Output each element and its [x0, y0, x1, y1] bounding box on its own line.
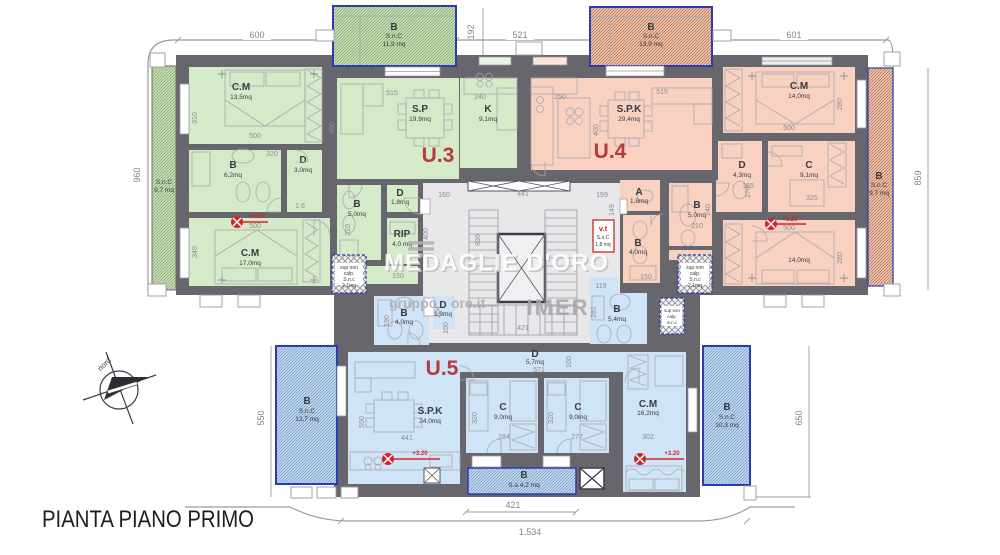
svg-text:284: 284 [498, 434, 510, 441]
svg-text:B: B [229, 160, 236, 171]
svg-text:S.a 4,2 mq: S.a 4,2 mq [508, 482, 540, 489]
svg-text:U.3: U.3 [422, 144, 455, 167]
svg-text:859: 859 [913, 170, 923, 185]
svg-text:1,8mq: 1,8mq [391, 199, 409, 206]
svg-text:421: 421 [505, 500, 520, 510]
svg-text:+3.20: +3.20 [248, 214, 264, 220]
svg-text:C: C [499, 402, 506, 413]
svg-text:521: 521 [512, 30, 527, 40]
svg-text:gruppo: gruppo [389, 295, 437, 311]
svg-text:302: 302 [642, 434, 654, 441]
svg-text:calp.: calp. [667, 314, 677, 319]
svg-text:960: 960 [132, 167, 142, 182]
svg-text:14,0mq: 14,0mq [788, 257, 810, 264]
svg-text:+3.20: +3.20 [782, 217, 798, 223]
svg-text:600: 600 [249, 30, 264, 40]
svg-text:281: 281 [591, 306, 598, 318]
svg-text:C.M: C.M [241, 248, 259, 259]
svg-text:29,4mq: 29,4mq [618, 116, 640, 123]
svg-text:B: B [647, 22, 654, 33]
svg-text:421: 421 [517, 325, 529, 332]
svg-text:240: 240 [474, 94, 486, 101]
svg-text:550: 550 [256, 410, 266, 425]
svg-text:B: B [723, 402, 730, 413]
svg-text:13,5mq: 13,5mq [230, 94, 252, 101]
svg-text:500: 500 [783, 125, 795, 132]
svg-text:325: 325 [806, 195, 818, 202]
svg-text:S.n.C: S.n.C [597, 235, 610, 241]
svg-text:1,8 mq: 1,8 mq [595, 242, 611, 248]
svg-text:550: 550 [359, 416, 366, 428]
svg-text:+3.20: +3.20 [412, 451, 428, 457]
svg-text:+3.20: +3.20 [664, 451, 680, 457]
svg-text:210: 210 [691, 223, 703, 230]
svg-text:6,2mq: 6,2mq [224, 172, 242, 179]
svg-text:400: 400 [329, 122, 336, 134]
svg-text:D: D [738, 160, 745, 171]
svg-text:19,9mq: 19,9mq [409, 116, 431, 123]
svg-text:310: 310 [192, 112, 199, 124]
svg-text:C: C [805, 160, 812, 171]
svg-text:17,0mq: 17,0mq [239, 260, 261, 267]
svg-text:5,0mq: 5,0mq [348, 211, 366, 218]
svg-text:B: B [613, 304, 620, 315]
svg-text:13,7 mq: 13,7 mq [295, 416, 319, 423]
svg-text:441: 441 [517, 191, 529, 198]
svg-text:11,9 mq: 11,9 mq [382, 41, 405, 48]
svg-text:280: 280 [837, 98, 844, 110]
svg-text:S.n.C: S.n.C [299, 408, 316, 415]
svg-text:S.n.C: S.n.C [386, 33, 403, 40]
svg-text:A: A [635, 187, 642, 198]
svg-text:340: 340 [192, 246, 199, 258]
svg-text:320: 320 [472, 412, 479, 424]
svg-text:100: 100 [566, 356, 573, 368]
svg-text:441: 441 [401, 435, 413, 442]
svg-text:C.M: C.M [790, 81, 808, 92]
svg-text:1.6: 1.6 [295, 203, 305, 210]
svg-text:500: 500 [783, 225, 795, 232]
svg-text:RIP: RIP [394, 229, 411, 240]
svg-text:C: C [574, 402, 581, 413]
svg-text:150: 150 [640, 274, 652, 281]
svg-text:5,0mq: 5,0mq [688, 212, 706, 219]
svg-text:9,7 mq: 9,7 mq [154, 187, 174, 194]
svg-text:4,0mq: 4,0mq [395, 319, 413, 326]
svg-text:S.n.C: S.n.C [719, 414, 736, 421]
svg-text:515: 515 [386, 90, 398, 97]
svg-text:250: 250 [554, 94, 566, 101]
svg-text:400: 400 [423, 228, 430, 240]
svg-text:B: B [520, 470, 527, 481]
svg-text:5,7mq: 5,7mq [526, 359, 544, 366]
svg-text:K: K [484, 104, 492, 115]
svg-text:D: D [299, 155, 306, 166]
svg-text:B: B [303, 396, 310, 407]
svg-text:190: 190 [384, 315, 391, 327]
svg-text:B: B [634, 238, 641, 249]
svg-text:sup non: sup non [664, 308, 681, 313]
svg-text:S.P: S.P [412, 104, 428, 115]
svg-text:C.M: C.M [639, 399, 657, 410]
svg-text:S.P.K: S.P.K [418, 406, 444, 417]
svg-text:4,0mq: 4,0mq [629, 249, 647, 256]
svg-text:119: 119 [595, 283, 606, 290]
svg-text:5,4mq: 5,4mq [608, 316, 626, 323]
svg-text:100: 100 [443, 322, 450, 334]
svg-text:165: 165 [742, 183, 754, 190]
svg-text:320: 320 [548, 412, 555, 424]
svg-text:S.P.K: S.P.K [617, 104, 643, 115]
svg-text:v.t: v.t [599, 224, 608, 233]
svg-text:S.n.c: S.n.c [667, 320, 678, 325]
svg-text:9,0mq: 9,0mq [494, 414, 512, 421]
svg-text:S.n.C: S.n.C [156, 179, 173, 186]
svg-text:500: 500 [249, 133, 261, 140]
svg-text:210: 210 [345, 224, 352, 236]
svg-text:B: B [693, 200, 700, 211]
svg-text:320: 320 [266, 151, 278, 158]
svg-text:U.4: U.4 [594, 140, 627, 163]
svg-text:601: 601 [786, 30, 801, 40]
svg-text:400: 400 [593, 124, 600, 136]
svg-text:24,0mq: 24,0mq [419, 418, 441, 425]
svg-text:9,1mq: 9,1mq [800, 172, 818, 179]
svg-text:16,2mq: 16,2mq [637, 410, 659, 417]
svg-text:2,1mq: 2,1mq [342, 283, 356, 289]
svg-text:S.n.C: S.n.C [871, 182, 888, 189]
svg-text:B: B [353, 199, 360, 210]
svg-text:515: 515 [656, 89, 668, 96]
svg-text:160: 160 [438, 192, 450, 199]
svg-text:149: 149 [609, 204, 616, 216]
svg-text:MEDAGLIE D'ORO: MEDAGLIE D'ORO [384, 250, 609, 277]
svg-text:571: 571 [533, 367, 545, 374]
svg-text:500: 500 [249, 223, 261, 230]
svg-text:2,1mq: 2,1mq [688, 283, 702, 289]
svg-text:9,7 mq: 9,7 mq [869, 190, 889, 197]
svg-text:PIANTA PIANO PRIMO: PIANTA PIANO PRIMO [42, 506, 254, 533]
svg-text:IMER: IMER [527, 295, 590, 320]
svg-text:B: B [390, 22, 397, 33]
svg-text:277: 277 [571, 434, 583, 441]
svg-text:240: 240 [705, 204, 712, 216]
svg-text:9,1mq: 9,1mq [479, 116, 497, 123]
svg-text:B: B [875, 171, 882, 182]
svg-text:3,0mq: 3,0mq [294, 167, 312, 174]
svg-text:C.M: C.M [232, 82, 250, 93]
svg-text:D: D [396, 188, 403, 199]
svg-text:159: 159 [596, 192, 608, 199]
svg-text:650: 650 [794, 410, 804, 425]
svg-text:S.n.C: S.n.C [643, 33, 660, 40]
svg-text:13,9 mq: 13,9 mq [639, 41, 663, 48]
svg-text:9,0mq: 9,0mq [569, 414, 587, 421]
svg-text:1,8mq: 1,8mq [630, 198, 648, 205]
svg-text:836: 836 [475, 234, 482, 246]
svg-text:192: 192 [466, 24, 476, 39]
svg-text:4,3mq: 4,3mq [733, 172, 751, 179]
svg-text:10,3 mq: 10,3 mq [715, 422, 739, 429]
svg-text:14,0mq: 14,0mq [788, 93, 810, 100]
svg-text:280: 280 [837, 252, 844, 264]
svg-text:1.534: 1.534 [519, 527, 542, 537]
svg-text:U.5: U.5 [426, 357, 459, 380]
svg-text:ore.it: ore.it [451, 295, 486, 311]
